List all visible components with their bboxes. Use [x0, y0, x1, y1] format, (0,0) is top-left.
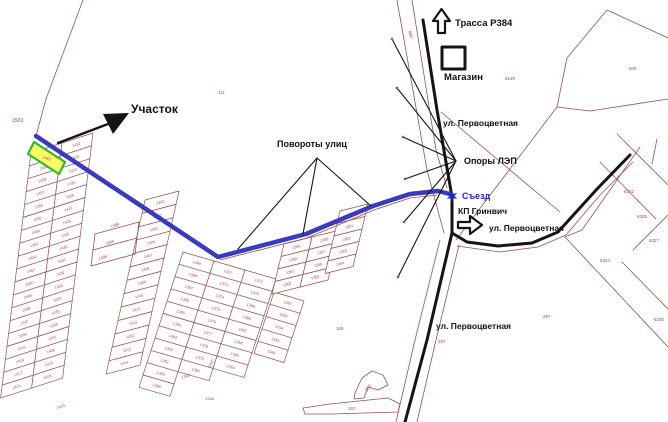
parcel-number: 6325 [637, 214, 648, 219]
parcel-number: 6324 [600, 258, 611, 263]
parcel-line [417, 245, 459, 422]
parcel-line [557, 10, 668, 111]
highway-up-arrow-icon [433, 9, 450, 33]
parcel-number: 111 [218, 90, 225, 95]
cadastral-map-svg: 1460145914581457145614551454145314521451… [0, 0, 668, 422]
shop-square-icon [442, 47, 465, 69]
access-route [36, 136, 450, 257]
parcel-number: 297 [543, 314, 551, 319]
power-pole-dot [391, 38, 393, 40]
power-pole-dot [396, 87, 398, 89]
power-pole-dot [397, 276, 399, 278]
parcel-line [93, 238, 137, 250]
parcel-number: 6330 [654, 317, 665, 322]
parcel-number: 605 [629, 66, 637, 71]
label-street-pervotsvetnaya-top: ул. Первоцветная [443, 119, 518, 128]
label-plot: Участок [131, 103, 178, 115]
label-kp-greenwich: КП Гринвич [458, 207, 507, 216]
power-pole-dot [402, 136, 404, 138]
parcel-number: 1415 [56, 403, 67, 410]
power-poles-fan [403, 137, 456, 161]
label-street-pervotsvetnaya-bottom: ул. Первоцветная [436, 322, 511, 331]
power-pole-dot [403, 221, 405, 223]
parcel-number: 1503 [12, 118, 23, 124]
label-street-turns: Повороты улиц [277, 140, 347, 149]
parcel-number: 480 [407, 30, 414, 39]
label-street-pervotsvetnaya-mid: ул. Первоцветная [489, 224, 564, 233]
parcel-number: 165 [336, 326, 344, 331]
parcel-number: 1406 [98, 253, 109, 261]
parcel-line [36, 0, 83, 136]
parcel-number: 6327 [649, 238, 660, 243]
parcel-number: 5130 [505, 76, 516, 81]
parcel-line [565, 237, 668, 347]
parcel-line [622, 262, 668, 309]
label-shop: Магазин [444, 73, 483, 83]
label-power-poles: Опоры ЛЭП [464, 157, 517, 166]
parcel-number: 167 [348, 406, 356, 411]
street-turns-fan [317, 158, 371, 206]
parcel-line [633, 215, 668, 250]
street-turns-fan [303, 158, 317, 234]
parcel-polygon [354, 371, 388, 399]
parcel-number: 163 [364, 383, 373, 392]
entrance-right-arrow-icon [458, 216, 482, 234]
label-exit: Съезд [462, 192, 490, 201]
parcel-number: 1405 [105, 238, 116, 246]
parcel-line [652, 139, 657, 164]
cadastral-map: 1460145914581457145614551454145314521451… [0, 0, 668, 422]
label-highway: Трасса Р384 [455, 19, 512, 29]
parcel-number: 1348 [205, 396, 215, 401]
parcel-number: 297 [438, 339, 446, 344]
parcel-number: 6322 [624, 189, 635, 194]
power-pole-dot [404, 178, 406, 180]
